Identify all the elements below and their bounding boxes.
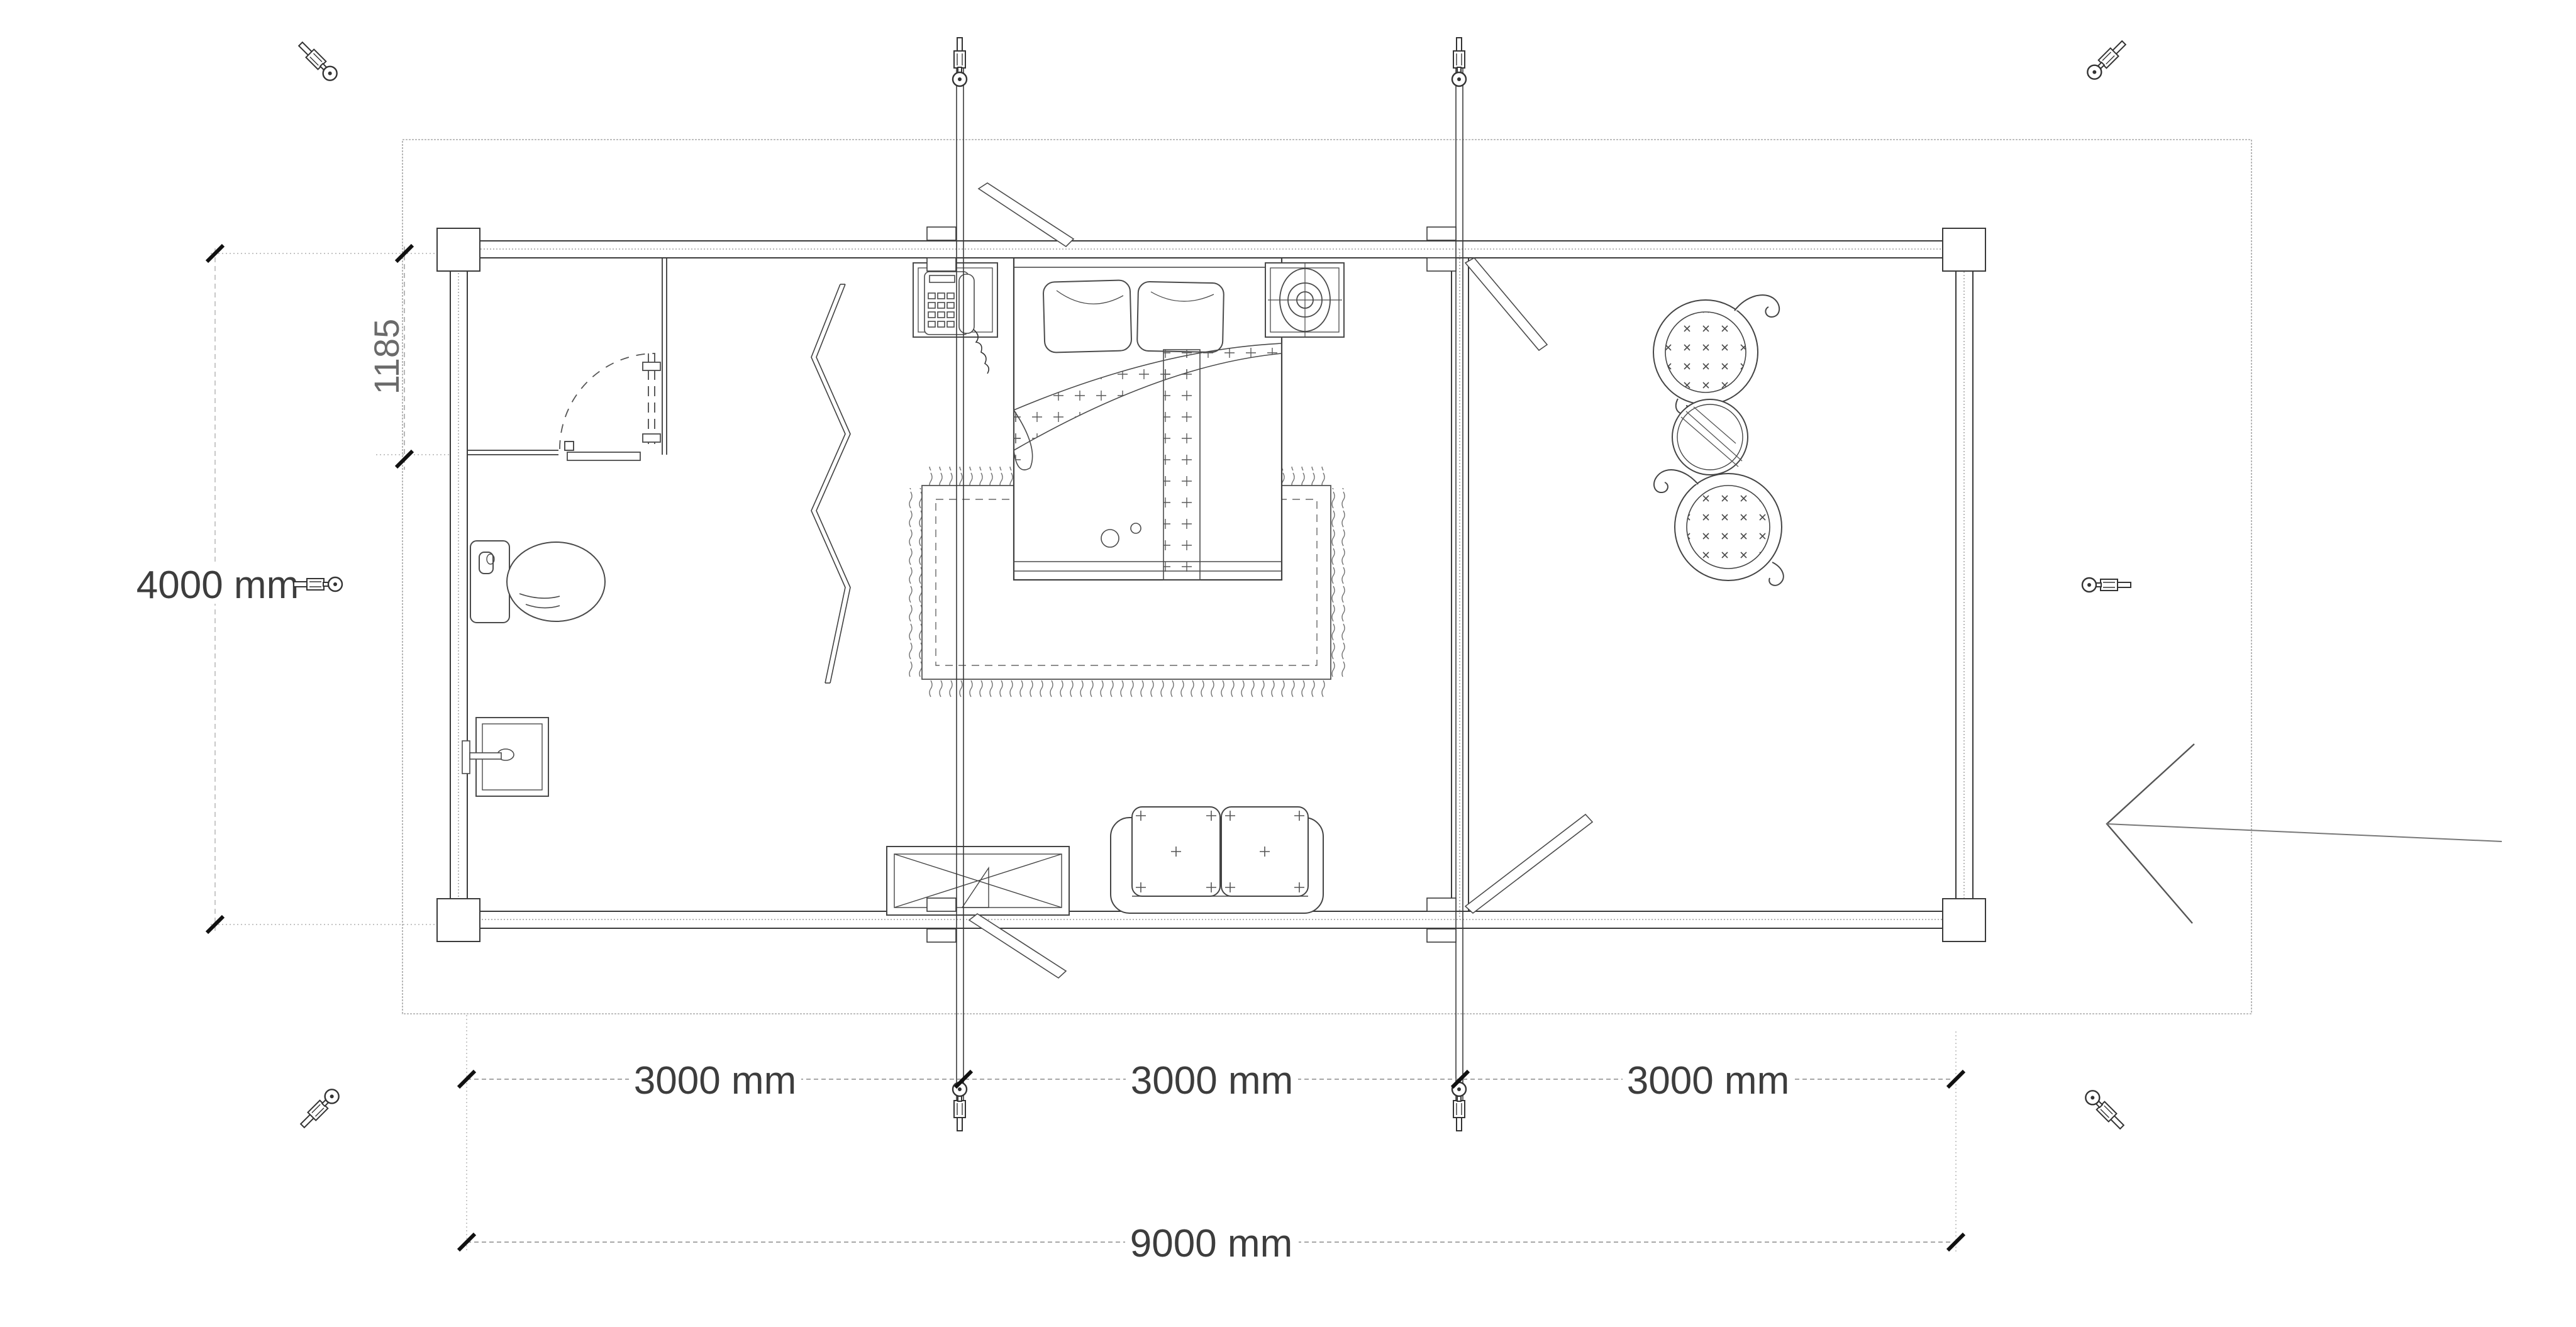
height-dimension-text: 4000 mm [136,564,299,607]
total-dimension-text: 9000 mm [1130,1222,1292,1265]
floor-plan-canvas: 4000 mm 1185 3000 mm 3000 mm 3000 mm 900… [0,0,2576,1327]
closet-door [560,353,660,460]
dimension-label-bay2: 3000 mm [1126,1059,1298,1102]
pillow [1137,282,1224,353]
bay3-dimension-text: 3000 mm [1627,1059,1789,1102]
turnbuckle-anchor-icon [2083,1088,2127,1132]
brace [969,914,1066,978]
turnbuckle-anchor-icon [2085,38,2129,82]
bay1-dimension-text: 3000 mm [634,1059,796,1102]
storm-rod-right [1427,38,1466,1131]
dimension-label-bay1: 3000 mm [629,1059,801,1102]
round-side-table [1672,399,1748,475]
closet-partition [467,258,667,455]
faucet-spout [470,753,501,759]
dimension-label-partition: 1185 [367,319,406,394]
rod-turnbuckle-icon [953,38,967,86]
tv-cabinet [887,847,1069,915]
bay2-dimension-text: 3000 mm [1131,1059,1293,1102]
brace [979,183,1074,247]
corner-post [437,899,480,941]
brace [1465,814,1592,913]
rod-turnbuckle-icon [1452,38,1466,86]
bathroom-sink [462,718,548,796]
brace [1465,258,1547,350]
double-bed [1014,258,1282,580]
chair-curl-small [1769,562,1784,586]
faucet [462,741,470,774]
corner-post [437,228,480,271]
folding-screen [811,284,850,683]
lounge-chair-bottom [1654,470,1784,586]
turnbuckle-anchor-icon [2082,578,2131,592]
telephone-handset [959,274,974,333]
floor-plan-page: 4000 mm 1185 3000 mm 3000 mm 3000 mm 900… [0,0,2576,1327]
lounge-chair-top [1653,295,1779,414]
dimension-label-bay3: 3000 mm [1623,1059,1795,1102]
pillow [1043,280,1132,353]
toilet [470,541,605,623]
rod-turnbuckle-icon [1452,1082,1466,1131]
partition-dimension-text: 1185 [367,319,406,394]
dimension-lines [467,1079,1956,1242]
corner-post [1943,228,1985,271]
rod-turnbuckle-icon [953,1082,967,1131]
turnbuckle-anchor-icon [296,39,340,83]
entrance-arrow [2107,744,2502,923]
dimension-label-height: 4000 mm [130,562,342,607]
bedside-table-burner [1265,263,1344,337]
sofa [1111,807,1323,913]
corner-post [1943,899,1985,941]
turnbuckle-anchor-icon [297,1087,341,1131]
bedside-table-phone [913,263,997,374]
dimension-label-total: 9000 mm [1125,1222,1299,1265]
